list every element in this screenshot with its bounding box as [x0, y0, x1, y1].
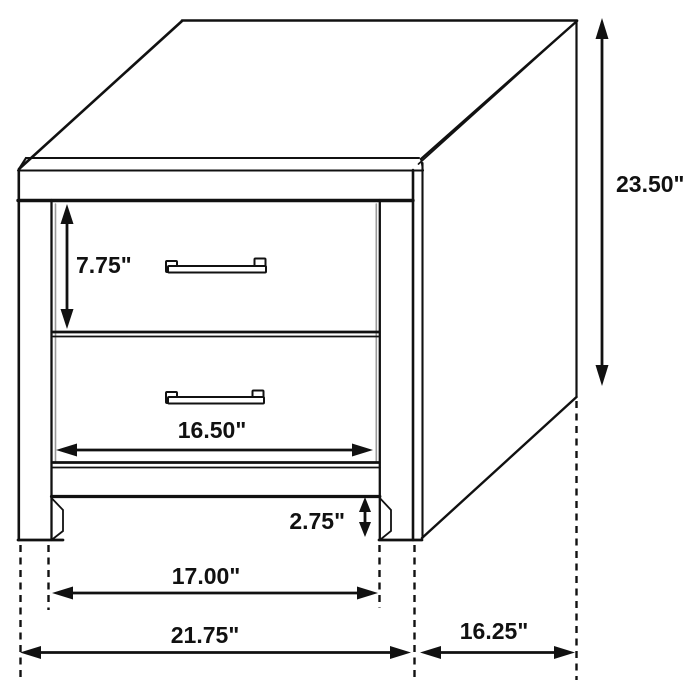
- dim-arrow-floor-clearance: [359, 497, 371, 537]
- nightstand-side-panel: [422, 21, 577, 538]
- dimension-label-overall-height: 23.50": [616, 173, 684, 196]
- dim-arrow-drawer-height: [61, 204, 74, 329]
- dim-arrow-overall-height: [596, 18, 609, 386]
- dimension-diagram: 7.75" 23.50" 16.50" 2.75" 17.00" 21.75" …: [0, 0, 700, 700]
- dimension-label-overall-width: 21.75": [171, 624, 239, 647]
- dimension-label-floor-clearance: 2.75": [289, 510, 345, 533]
- dimension-label-leg-inner-span: 17.00": [172, 565, 240, 588]
- dimension-label-drawer-width: 16.50": [178, 419, 246, 442]
- nightstand-line-art: [0, 0, 700, 700]
- dim-arrow-overall-depth: [420, 646, 575, 659]
- dimension-label-overall-depth: 16.25": [460, 620, 528, 643]
- drawer-2-handle-icon: [166, 391, 264, 404]
- nightstand-front-frame: [18, 170, 422, 540]
- dimension-label-drawer-height: 7.75": [76, 254, 132, 277]
- drawer-1-handle-icon: [166, 259, 266, 273]
- nightstand-top-surface: [18, 21, 577, 171]
- dim-arrow-drawer-width: [56, 444, 373, 457]
